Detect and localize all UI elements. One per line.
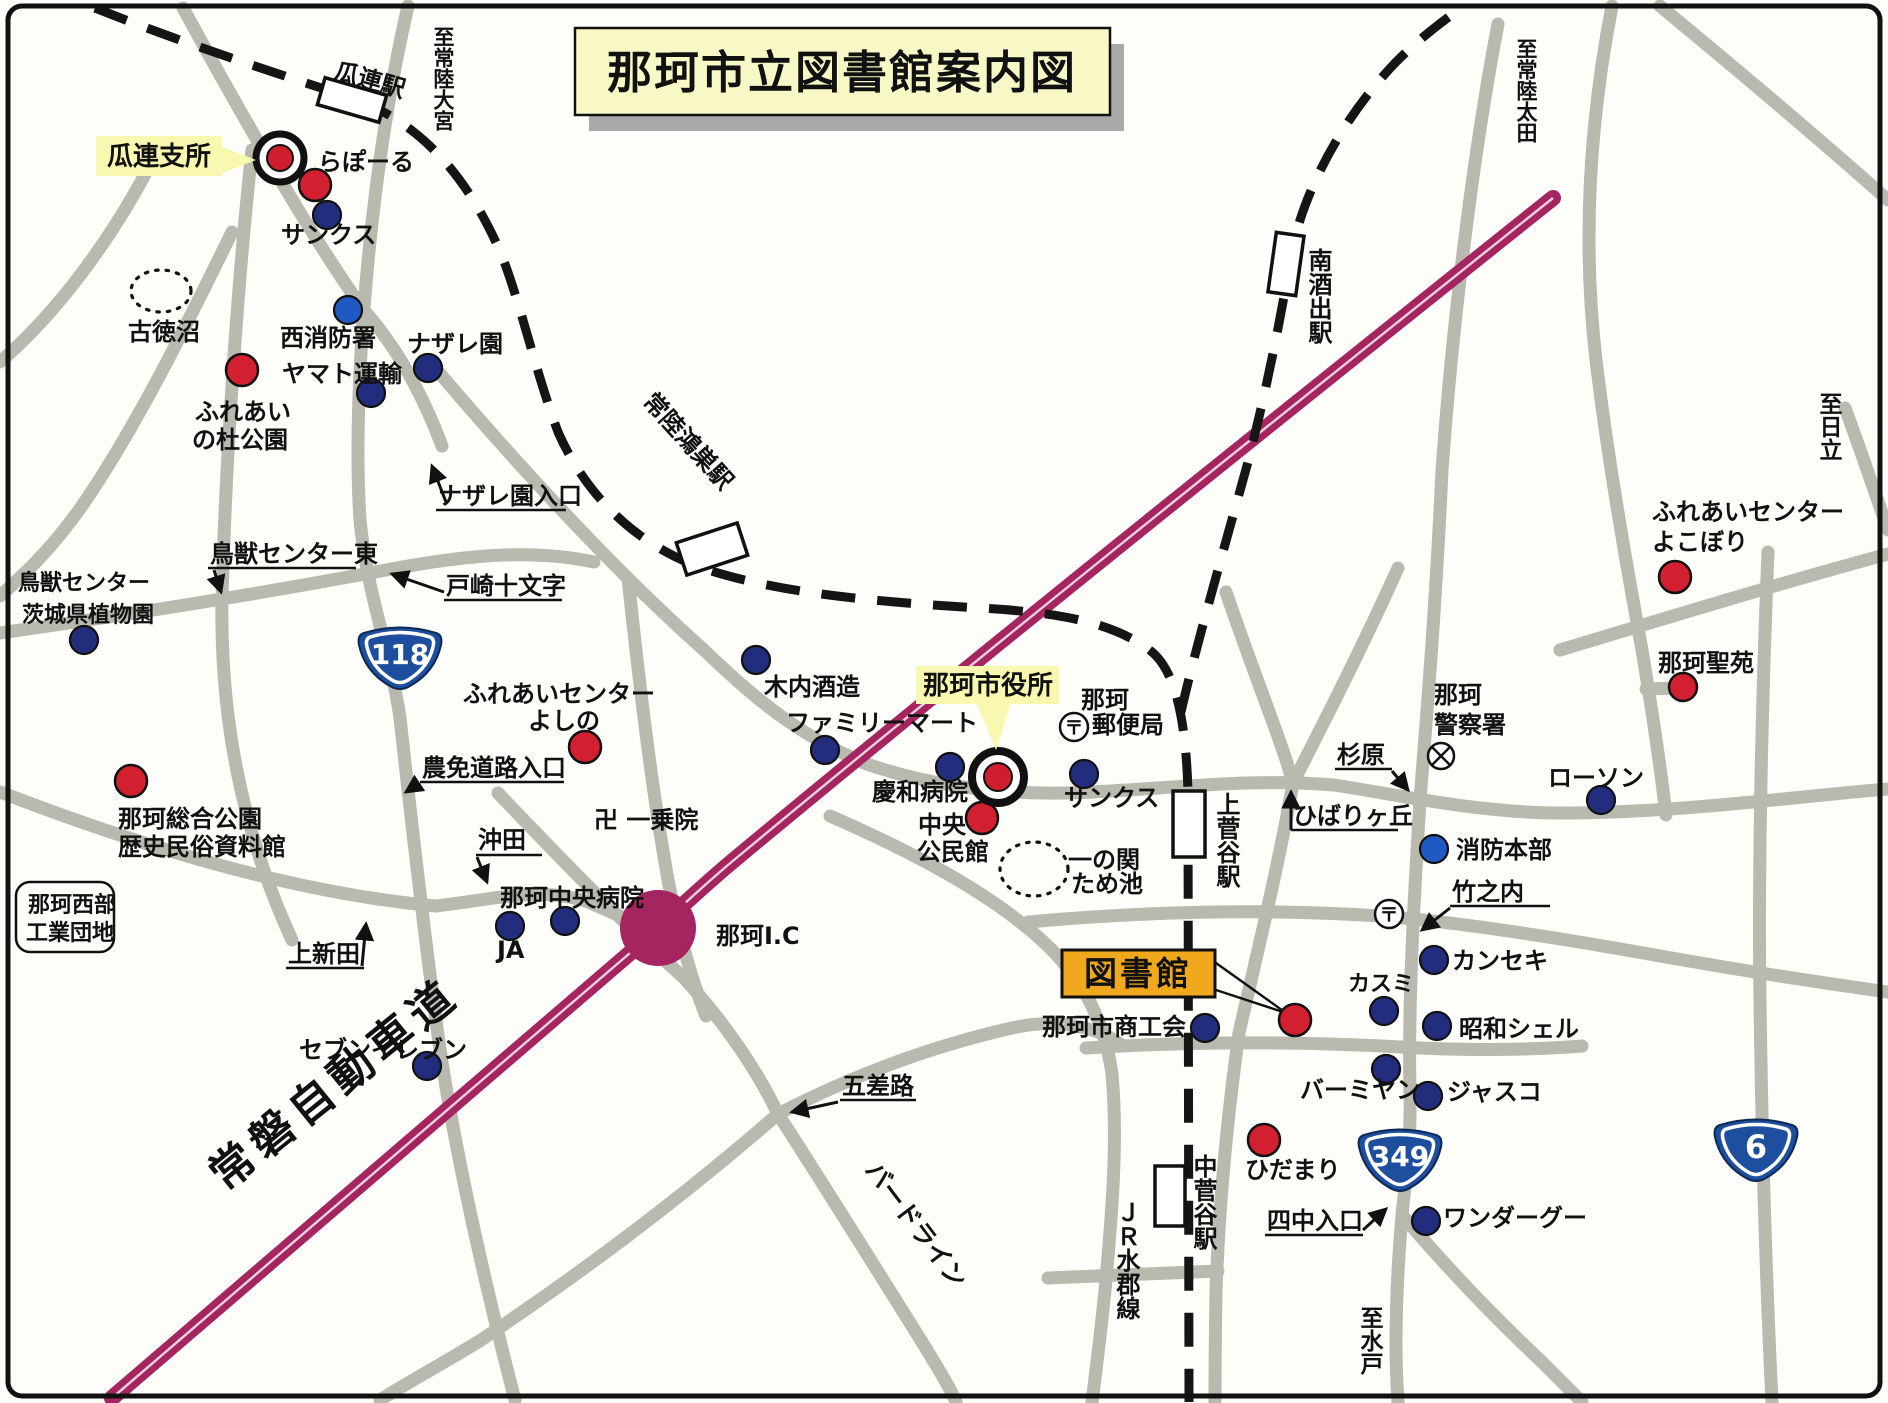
naka-sugaya-station-box xyxy=(1155,1166,1185,1226)
to-hitachi-ota-label: 至常陸太田 xyxy=(1514,38,1538,143)
road-pond-southeast xyxy=(830,816,1114,1402)
poi-label: ふれあいセンター xyxy=(463,680,655,708)
minami-sakaide-station-label: 南酒出駅 xyxy=(1304,248,1332,345)
poi-label: 消防本部 xyxy=(1456,836,1552,864)
naka-ic-label: 那珂I.C xyxy=(716,922,800,950)
police-label: 那珂 xyxy=(1434,681,1482,709)
suigun-line-branch xyxy=(1181,6,1464,712)
to-hitachi-omiya-label: 至常陸大宮 xyxy=(431,26,455,131)
poi-label: JA xyxy=(495,936,525,964)
fureai-park-dot xyxy=(226,354,258,386)
post-office-label: 郵便局 xyxy=(1092,711,1164,739)
city-hall-callout-tail xyxy=(975,700,1012,750)
kiuchi-dot xyxy=(742,646,770,674)
police-label: 警察署 xyxy=(1433,711,1506,739)
kanseki-dot xyxy=(1420,946,1448,974)
post-box-icon-glyph: 〒 xyxy=(1379,904,1398,926)
city-hall-callout: 那珂市役所 xyxy=(916,666,1059,750)
page-title: 那珂市立図書館案内図 xyxy=(607,46,1077,99)
road-fork-southeast xyxy=(1402,1215,1582,1402)
road-gosaro-southwest xyxy=(380,1114,778,1400)
urizura-branch-label: 瓜連支所 xyxy=(107,142,211,172)
fureai-yokobori-dot xyxy=(1659,561,1691,593)
intersection-label: 沖田 xyxy=(478,826,526,854)
intersection-label: 上新田 xyxy=(288,940,360,968)
kami-sugaya-station-label: 上菅谷駅 xyxy=(1212,792,1240,889)
poi-label: 公民館 xyxy=(917,838,989,866)
hidamari-dot xyxy=(1248,1124,1280,1156)
poi-label: 鳥獣センター xyxy=(18,570,150,596)
poi-label: 中央 xyxy=(918,811,967,839)
city-hall-label: 那珂市役所 xyxy=(923,670,1053,701)
poi-label: 那珂聖苑 xyxy=(1658,649,1754,677)
minami-sakaide-station-box xyxy=(1268,232,1304,295)
nishi-fire-dot xyxy=(334,296,362,324)
nazareen-dot xyxy=(414,354,442,382)
intersection-label: ひばりヶ丘 xyxy=(1293,802,1413,830)
poi-label: カンセキ xyxy=(1452,947,1548,975)
hitachi-konosu-station-box xyxy=(676,523,747,575)
poi-label: よしの xyxy=(528,707,600,735)
route-349-number: 349 xyxy=(1371,1140,1429,1173)
intersection-label: 五差路 xyxy=(842,1072,915,1100)
intersection-label: 四中入口 xyxy=(1267,1207,1363,1235)
poi-label: ワンダーグー xyxy=(1443,1204,1587,1232)
poi-label: ふれあいセンター xyxy=(1652,498,1844,526)
poi-label: ふれあい xyxy=(195,398,291,426)
poi-label: ファミリーマート xyxy=(786,709,978,737)
naka-sugaya-station-label: 中菅谷駅 xyxy=(1189,1154,1217,1251)
fureai-yoshino-dot xyxy=(569,731,601,763)
intersection-label: 杉原 xyxy=(1337,741,1385,769)
route-6-shield: 6 xyxy=(1715,1120,1798,1182)
road xyxy=(1660,6,1888,200)
poi-label: カスミ xyxy=(1348,972,1414,997)
police-station-icon xyxy=(1428,743,1454,769)
hitachi-konosu-station-label: 常陸鴻巣駅 xyxy=(638,387,739,495)
pond-label: ため池 xyxy=(1071,870,1143,898)
showa-shell-dot xyxy=(1423,1012,1451,1040)
naka-sogo-park-dot xyxy=(115,765,147,797)
poi-label: バーミヤン xyxy=(1300,1076,1420,1104)
route-118-number: 118 xyxy=(371,638,429,671)
urizura-branch-ring-core xyxy=(267,145,293,171)
kami-sugaya-station-box xyxy=(1173,791,1205,857)
industrial-area-label: 工業団地 xyxy=(26,921,114,946)
poi-label: 木内酒造 xyxy=(763,673,860,701)
to-mito-label: 至水戸 xyxy=(1356,1306,1384,1376)
poi-label: 西消防署 xyxy=(280,324,376,352)
intersection-label: 竹之内 xyxy=(1451,878,1524,906)
poi-label: ローソン xyxy=(1548,764,1644,792)
poi-label: 那珂市商工会 xyxy=(1042,1013,1186,1041)
poi-label: よこぼり xyxy=(1652,528,1748,556)
route-6-number: 6 xyxy=(1745,1128,1767,1166)
map-canvas: 〒 〒 118 349 6 瓜連駅 常陸鴻巣駅 南酒出駅 上菅谷駅 中菅谷駅 Ｊ… xyxy=(0,0,1888,1403)
naka-seien-dot xyxy=(1669,673,1697,701)
route-118-shield: 118 xyxy=(359,628,442,690)
fire-hq-dot xyxy=(1420,835,1448,863)
road-library-eastwest xyxy=(1086,1043,1582,1050)
poi-label: 歴史民俗資料館 xyxy=(118,833,286,861)
industrial-area-label: 那珂西部 xyxy=(28,892,116,918)
jr-suigun-line-label: ＪＲ水郡線 xyxy=(1112,1200,1141,1321)
intersection-label: 鳥獣センター東 xyxy=(210,540,378,568)
poi-label: 那珂中央病院 xyxy=(500,884,644,912)
intersection-label: 農免道路入口 xyxy=(422,754,566,782)
poi-label: 慶和病院 xyxy=(872,778,968,806)
pond-label: 古徳沼 xyxy=(128,318,200,346)
temple-label: 卍 一乗院 xyxy=(594,806,698,834)
poi-label: ジャスコ xyxy=(1447,1078,1542,1106)
botanical-dot xyxy=(70,626,98,654)
shokokai-dot xyxy=(1191,1014,1219,1042)
poi-label: 昭和シェル xyxy=(1459,1015,1579,1043)
urizura-branch-callout: 瓜連支所 xyxy=(96,136,256,176)
poi-label: セブンイレブン xyxy=(299,1036,467,1064)
keiwa-dot xyxy=(936,753,964,781)
library-callout: 図書館 xyxy=(1062,950,1215,997)
naka-city-library-guide-map: 〒 〒 118 349 6 瓜連駅 常陸鴻巣駅 南酒出駅 上菅谷駅 中菅谷駅 Ｊ… xyxy=(0,0,1888,1403)
poi-label: の杜公園 xyxy=(192,426,288,454)
map-title: 那珂市立図書館案内図 xyxy=(575,28,1124,131)
chuo-kominkan-dot xyxy=(966,802,998,834)
intersection-label: ナザレ園入口 xyxy=(438,482,582,510)
road-hibari-diagonal xyxy=(1215,592,1293,1402)
poi-label: ナザレ園 xyxy=(407,330,503,358)
poi-label: サンクス xyxy=(1064,784,1159,812)
ichinoseki-pond-outline xyxy=(1000,842,1068,896)
post-office-label: 那珂 xyxy=(1081,686,1129,714)
poi-label: 茨城県植物園 xyxy=(22,602,154,628)
poi-label: ひだまり xyxy=(1245,1156,1341,1184)
poi-label: サンクス xyxy=(281,221,376,249)
library-dot xyxy=(1279,1004,1311,1036)
city-hall-ring-core xyxy=(984,763,1012,791)
kasumi-dot xyxy=(1370,997,1398,1025)
intersection-label: 戸崎十文字 xyxy=(446,572,566,600)
road-yokobori-eastwest xyxy=(1560,554,1888,650)
poi-label: ヤマト運輸 xyxy=(282,360,403,388)
route-349-shield: 349 xyxy=(1359,1130,1442,1192)
familymart-dot xyxy=(811,736,839,764)
to-hitachi-label: 至日立 xyxy=(1815,392,1843,461)
wonder-goo-dot xyxy=(1412,1207,1440,1235)
joban-expressway-label: 常磐自動車道 xyxy=(200,968,470,1200)
poi-label: 那珂総合公園 xyxy=(118,805,262,833)
kotoku-pond-outline xyxy=(131,270,191,312)
library-label: 図書館 xyxy=(1084,954,1192,993)
poi-label: らぽーる xyxy=(318,148,414,176)
post-office-icon-glyph: 〒 xyxy=(1064,717,1083,739)
